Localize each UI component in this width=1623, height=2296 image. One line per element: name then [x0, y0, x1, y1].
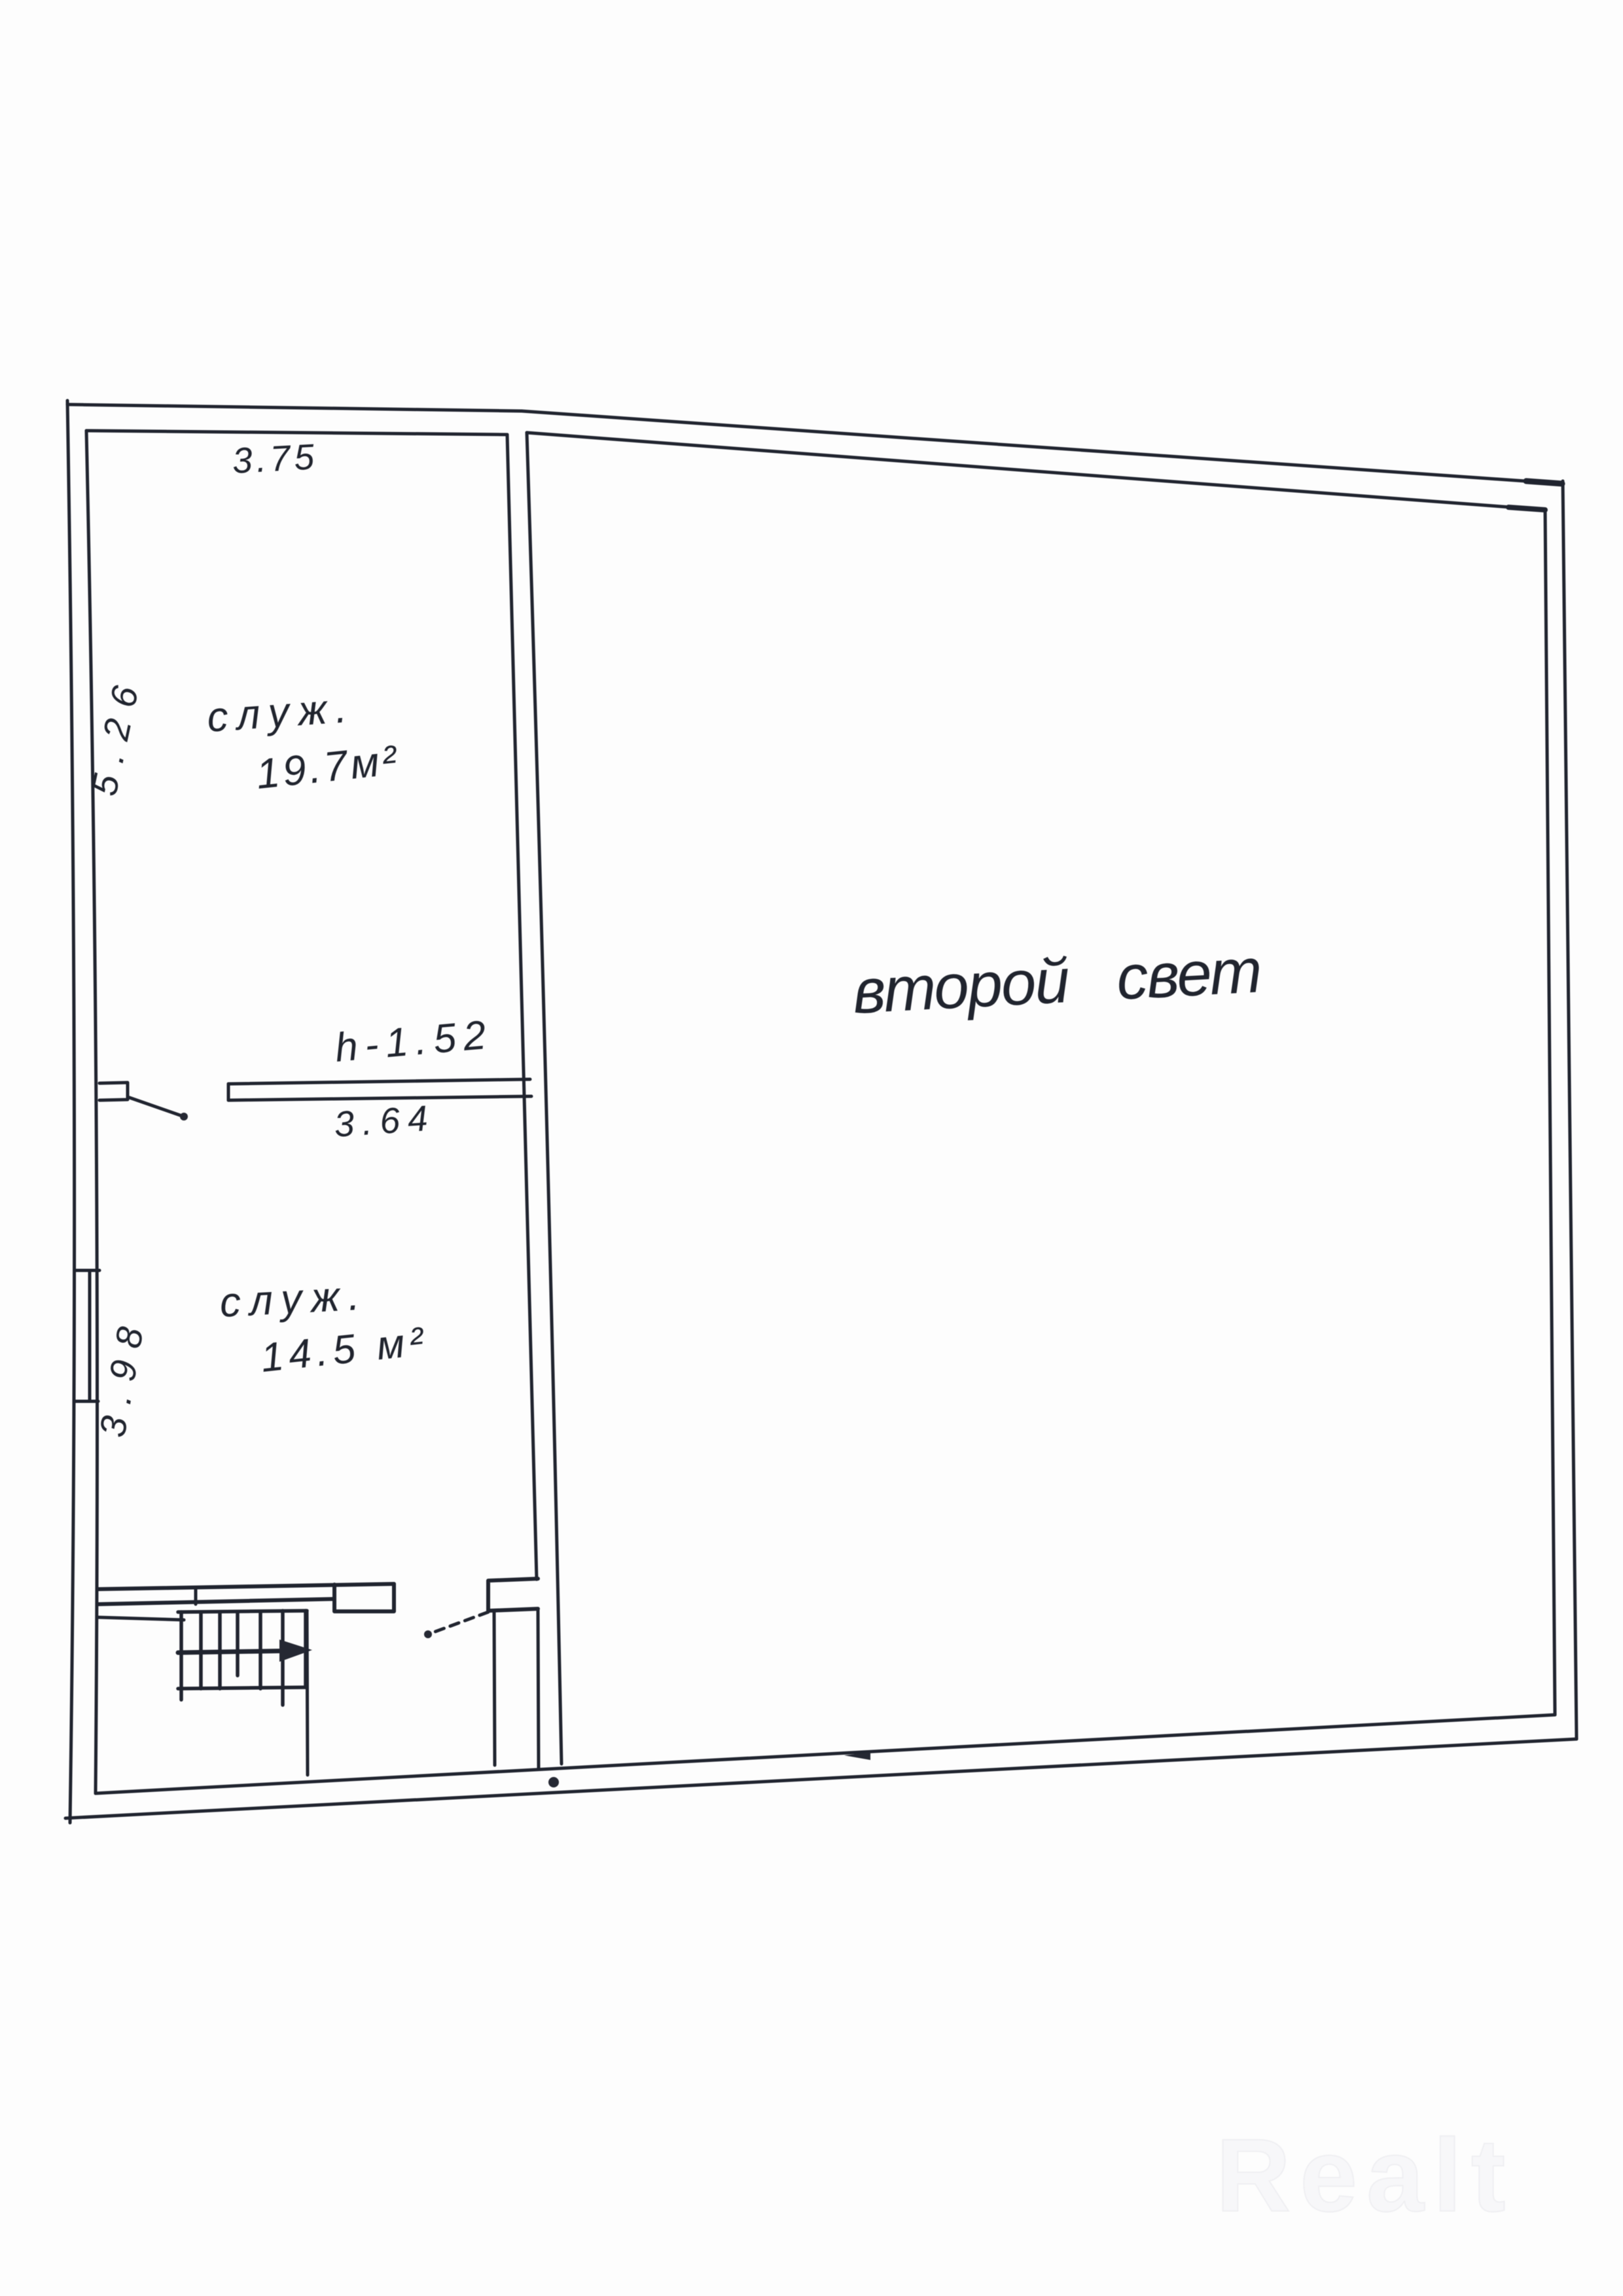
svg-text:служ.: служ.: [219, 1271, 369, 1326]
svg-text:Realt: Realt: [1216, 2118, 1514, 2233]
svg-text:3.98: 3.98: [91, 1311, 153, 1440]
svg-text:второй свет: второй свет: [851, 935, 1262, 1026]
svg-text:3.64: 3.64: [333, 1097, 437, 1145]
svg-text:h-1.52: h-1.52: [333, 1012, 495, 1071]
svg-text:3.75: 3.75: [231, 436, 319, 481]
svg-text:служ.: служ.: [205, 683, 357, 741]
svg-text:14.5 м²: 14.5 м²: [259, 1318, 431, 1380]
svg-text:19.7м²: 19.7м²: [254, 736, 402, 798]
